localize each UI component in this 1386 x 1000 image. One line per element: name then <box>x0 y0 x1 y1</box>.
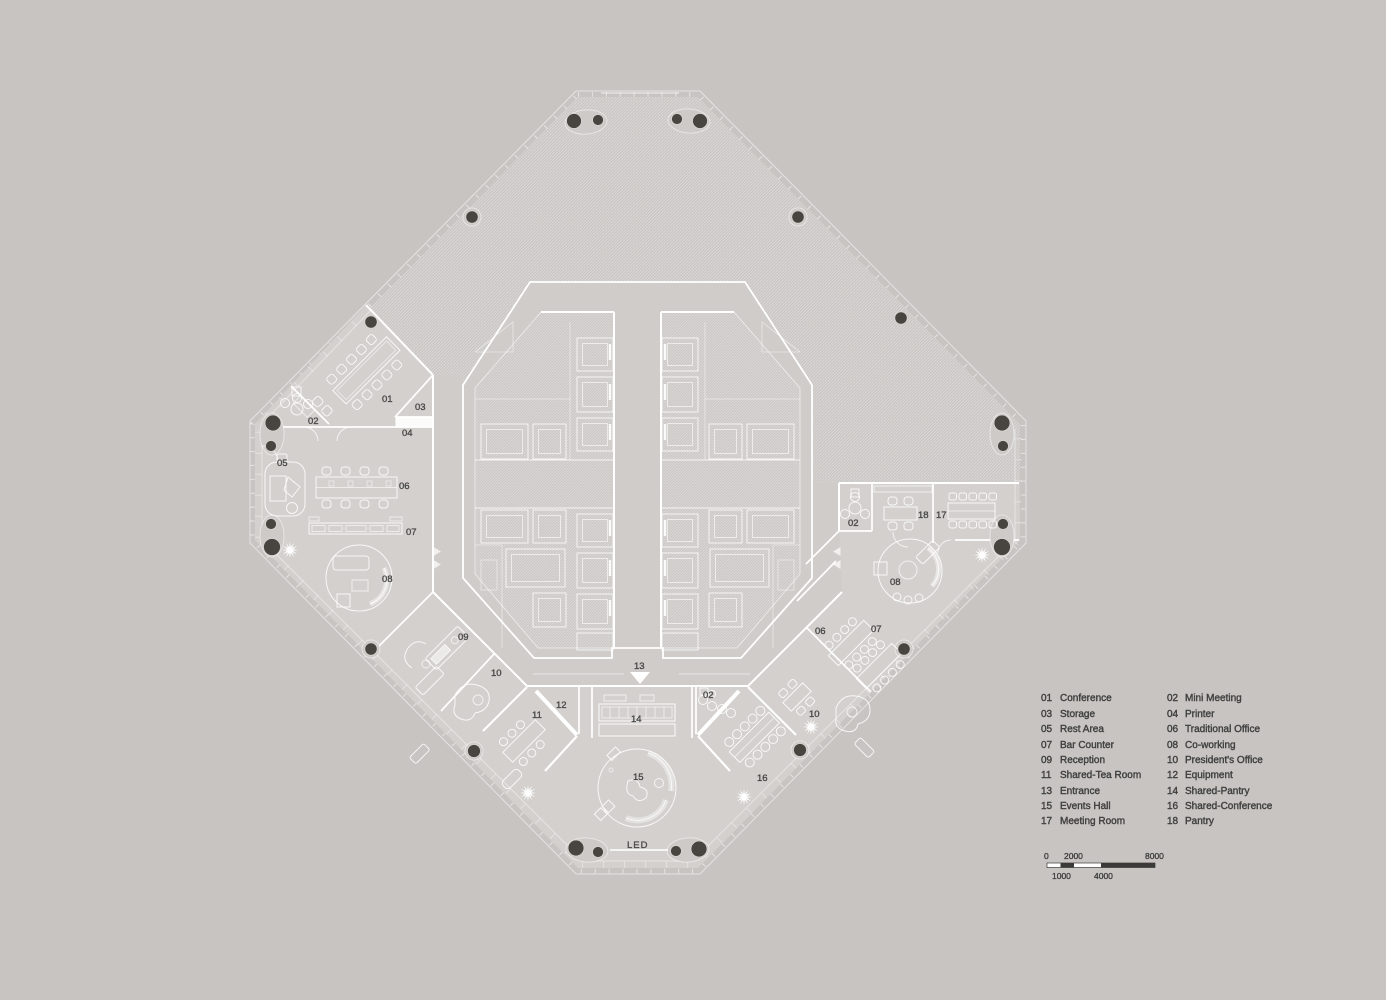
svg-text:07: 07 <box>406 527 417 538</box>
svg-text:14: 14 <box>631 714 642 725</box>
svg-text:15: 15 <box>633 772 644 783</box>
svg-text:Rest Area: Rest Area <box>1060 724 1104 735</box>
svg-text:01: 01 <box>1041 693 1053 704</box>
svg-text:03: 03 <box>1041 709 1053 720</box>
svg-text:16: 16 <box>1167 801 1179 812</box>
svg-text:02: 02 <box>1167 693 1179 704</box>
svg-text:15: 15 <box>1041 801 1053 812</box>
svg-text:01: 01 <box>382 394 393 405</box>
svg-text:18: 18 <box>1167 816 1179 827</box>
svg-text:LED: LED <box>627 840 648 851</box>
svg-text:08: 08 <box>382 574 393 585</box>
svg-text:06: 06 <box>1167 724 1179 735</box>
svg-text:13: 13 <box>1041 786 1053 797</box>
svg-text:Meeting Room: Meeting Room <box>1060 816 1125 827</box>
svg-text:2000: 2000 <box>1064 851 1083 861</box>
svg-text:10: 10 <box>1167 755 1179 766</box>
svg-text:10: 10 <box>809 709 820 720</box>
svg-text:14: 14 <box>1167 786 1179 797</box>
svg-text:Shared-Tea Room: Shared-Tea Room <box>1060 770 1141 781</box>
svg-text:Co-working: Co-working <box>1185 740 1236 751</box>
svg-text:12: 12 <box>556 700 567 711</box>
svg-text:08: 08 <box>1167 740 1179 751</box>
svg-text:11: 11 <box>532 710 542 721</box>
svg-text:1000: 1000 <box>1052 871 1071 881</box>
svg-text:Reception: Reception <box>1060 755 1105 766</box>
svg-text:8000: 8000 <box>1145 851 1164 861</box>
svg-text:02: 02 <box>308 416 319 427</box>
svg-text:Events Hall: Events Hall <box>1060 801 1111 812</box>
svg-text:18: 18 <box>918 510 929 521</box>
svg-text:17: 17 <box>936 510 947 521</box>
svg-text:07: 07 <box>871 624 882 635</box>
svg-text:17: 17 <box>1041 816 1053 827</box>
svg-text:Conference: Conference <box>1060 693 1112 704</box>
svg-text:05: 05 <box>277 458 288 469</box>
svg-text:0: 0 <box>1044 851 1049 861</box>
svg-text:Bar Counter: Bar Counter <box>1060 740 1115 751</box>
svg-text:11: 11 <box>1041 770 1052 781</box>
svg-text:07: 07 <box>1041 740 1053 751</box>
svg-text:13: 13 <box>634 661 645 672</box>
svg-text:02: 02 <box>703 690 714 701</box>
svg-text:08: 08 <box>890 577 901 588</box>
svg-text:06: 06 <box>399 481 410 492</box>
svg-text:03: 03 <box>415 402 426 413</box>
svg-text:Entrance: Entrance <box>1060 786 1100 797</box>
svg-text:Shared-Pantry: Shared-Pantry <box>1185 786 1249 797</box>
svg-text:06: 06 <box>815 626 826 637</box>
svg-text:12: 12 <box>1167 770 1179 781</box>
svg-text:04: 04 <box>402 428 413 439</box>
svg-text:Printer: Printer <box>1185 709 1215 720</box>
svg-text:Shared-Conference: Shared-Conference <box>1185 801 1273 812</box>
svg-text:16: 16 <box>757 773 768 784</box>
svg-text:09: 09 <box>1041 755 1053 766</box>
svg-text:02: 02 <box>848 518 859 529</box>
svg-text:Traditional Office: Traditional Office <box>1185 724 1260 735</box>
svg-text:Equipment: Equipment <box>1185 770 1233 781</box>
svg-text:Pantry: Pantry <box>1185 816 1214 827</box>
svg-text:Mini Meeting: Mini Meeting <box>1185 693 1242 704</box>
svg-text:05: 05 <box>1041 724 1053 735</box>
svg-text:09: 09 <box>458 632 469 643</box>
svg-text:Storage: Storage <box>1060 709 1095 720</box>
svg-text:10: 10 <box>491 668 502 679</box>
svg-text:04: 04 <box>1167 709 1179 720</box>
svg-text:4000: 4000 <box>1094 871 1113 881</box>
svg-text:President's Office: President's Office <box>1185 755 1263 766</box>
